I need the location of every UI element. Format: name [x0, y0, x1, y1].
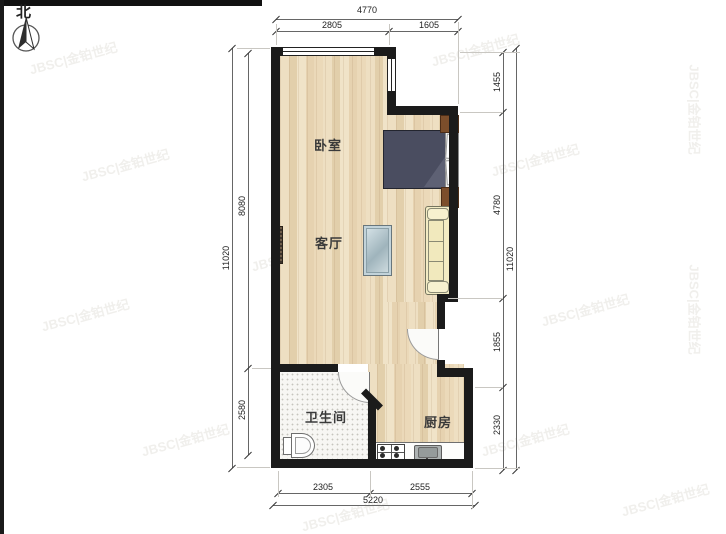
dim-line-left-overall [232, 48, 233, 468]
floor-plan: JBSC|金铂世纪 JBSC|金铂世纪 JBSC|金铂世纪 JBSC|金铂世纪 … [0, 0, 726, 534]
window-side [387, 59, 396, 91]
dim-value: 8080 [237, 184, 247, 228]
sofa-armrest [427, 208, 449, 220]
window-top [283, 47, 374, 56]
extension-line [276, 24, 277, 45]
watermark: JBSC|金铂世纪 [79, 144, 171, 186]
room-label-bedroom: 卧室 [298, 135, 358, 154]
north-arrow-icon [6, 13, 44, 53]
dim-value: 2580 [237, 388, 247, 432]
wall-bathroom-right [368, 400, 376, 459]
extension-line [475, 387, 503, 388]
stove-burner [380, 446, 385, 451]
extension-line [460, 112, 503, 113]
dim-value: 2330 [492, 403, 502, 447]
dim-value: 11020 [505, 237, 515, 281]
wall-right-main [449, 106, 458, 302]
dim-line-top-segments [276, 31, 458, 32]
extension-line [472, 471, 473, 509]
coffee-table-top [366, 228, 389, 273]
extension-line [237, 48, 270, 49]
extension-line [458, 22, 459, 104]
dim-value: 4780 [492, 183, 502, 227]
dim-line-right-segments [503, 52, 504, 470]
dim-value: 4770 [345, 5, 389, 15]
stove-burner [394, 453, 399, 458]
watermark: JBSC|金铂世纪 [686, 264, 705, 354]
dim-value: 11020 [221, 236, 231, 280]
extension-line [252, 368, 271, 369]
watermark: JBSC|金铂世纪 [39, 294, 131, 336]
sofa-seat [428, 220, 444, 281]
dim-line-bottom-segments [278, 493, 472, 494]
extension-line [389, 24, 390, 45]
dim-value: 1855 [492, 320, 502, 364]
wall-bathroom-top [277, 364, 338, 372]
wall-step-top [387, 106, 458, 115]
dim-line-bottom-overall [273, 505, 475, 506]
dim-line-left-segments [248, 53, 249, 455]
dim-value: 2805 [310, 20, 354, 30]
dim-line-right-overall [516, 48, 517, 470]
dim-value: 5220 [351, 495, 395, 505]
extension-line [460, 52, 520, 53]
watermark: JBSC|金铂世纪 [619, 479, 711, 521]
extension-line [475, 468, 520, 469]
watermark: JBSC|金铂世纪 [686, 64, 705, 154]
watermark: JBSC|金铂世纪 [539, 289, 631, 331]
wall-entry-upper [437, 302, 445, 329]
room-label-bathroom: 卫生间 [286, 407, 366, 426]
room-label-kitchen: 厨房 [408, 412, 468, 431]
kitchen-sink-basin [418, 447, 438, 458]
wall-left [271, 47, 280, 468]
stove-burner [380, 453, 385, 458]
dim-value: 1605 [407, 20, 451, 30]
extension-line [370, 471, 371, 497]
wall-bottom [271, 459, 473, 468]
dim-value: 2555 [398, 482, 442, 492]
sofa-armrest [427, 281, 449, 293]
watermark: JBSC|金铂世纪 [429, 29, 521, 71]
dim-value: 2305 [301, 482, 345, 492]
extension-line [278, 471, 279, 497]
room-label-living: 客厅 [299, 233, 359, 252]
extension-line [448, 298, 503, 299]
watermark: JBSC|金铂世纪 [139, 419, 231, 461]
extension-line [237, 467, 270, 468]
photo-edge-left [0, 0, 4, 534]
dim-value: 1455 [492, 60, 502, 104]
stove-burner [394, 446, 399, 451]
photo-edge-top [0, 0, 262, 6]
